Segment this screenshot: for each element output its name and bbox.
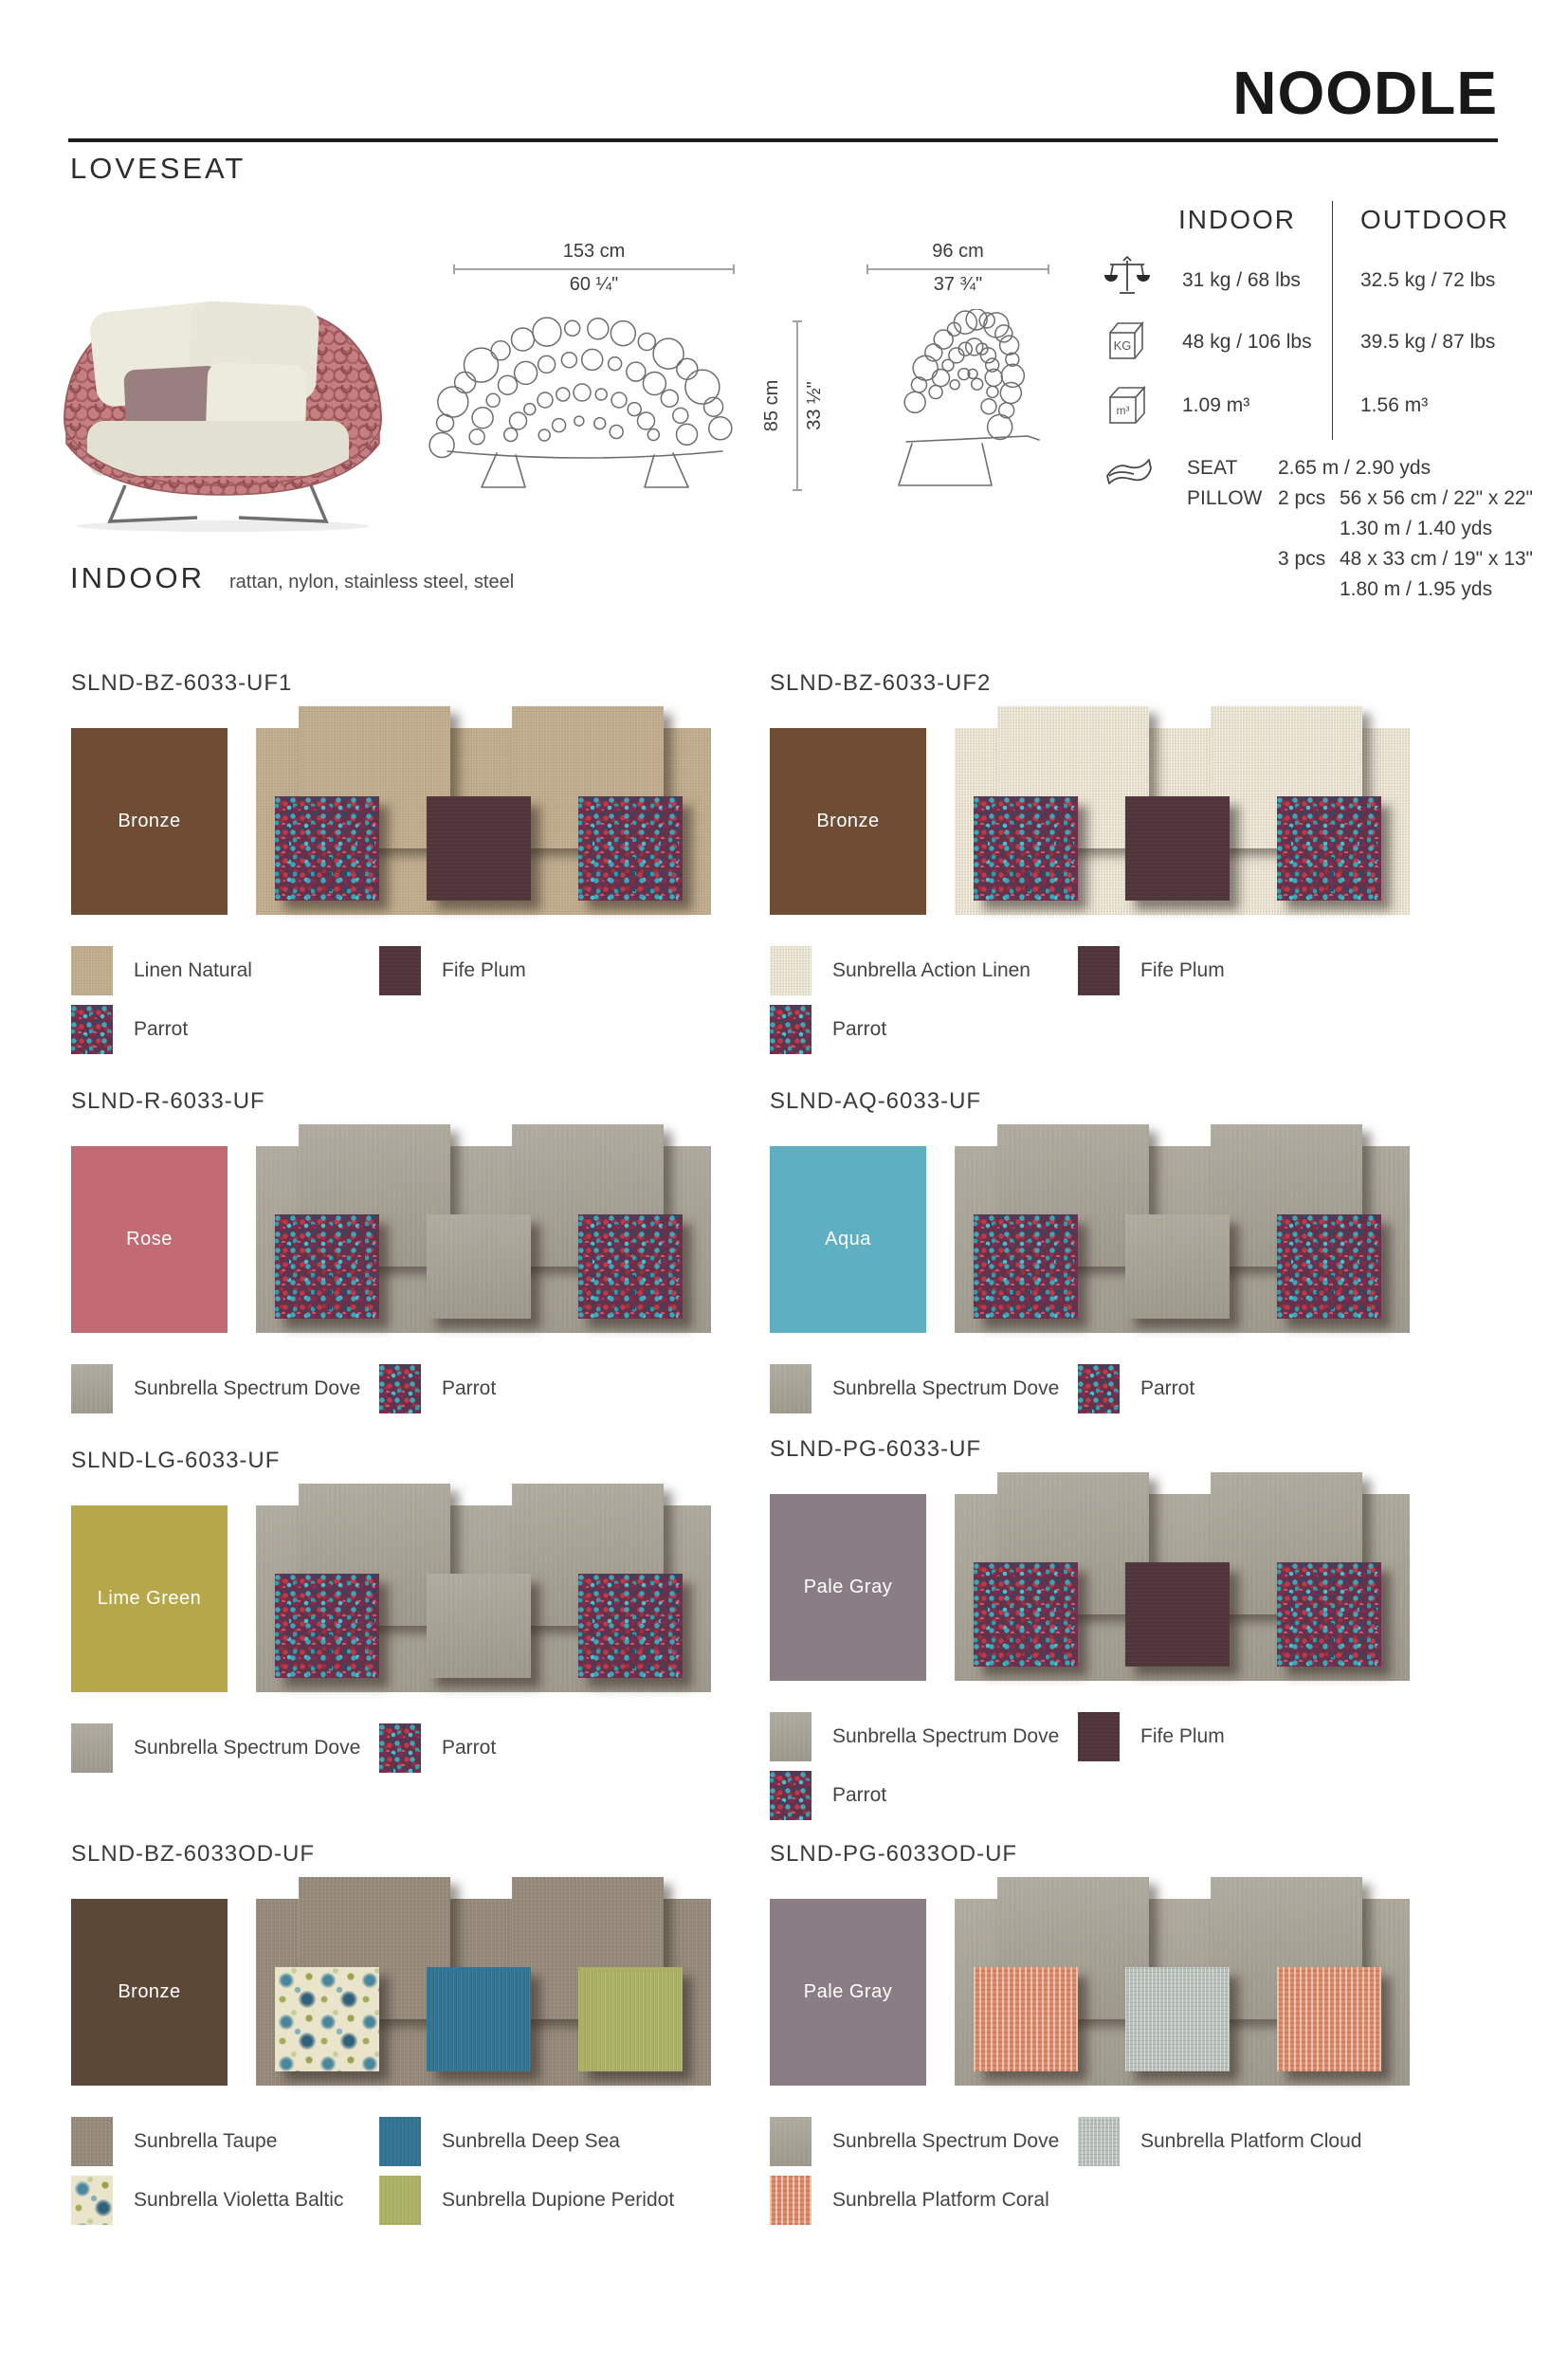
legend-item: Sunbrella Action Linen — [770, 946, 1078, 995]
fabric-collage — [955, 1472, 1410, 1681]
fabric-swatch — [770, 2117, 811, 2166]
variant-sku: SLND-BZ-6033-UF1 — [71, 670, 292, 697]
width-dimension: 153 cm 60 ¼" — [453, 241, 735, 296]
usage-pcs: 3 pcs — [1278, 548, 1340, 571]
variant-card: SLND-BZ-6033OD-UF Bronze Sunbrella Taupe… — [71, 1841, 725, 2287]
variant-sku: SLND-PG-6033-UF — [770, 1436, 981, 1463]
fabric-legend: Linen NaturalFife PlumParrot — [71, 946, 720, 1054]
fabric-legend: Sunbrella Spectrum DoveParrot — [71, 1364, 720, 1413]
variant-sku: SLND-PG-6033OD-UF — [770, 1841, 1017, 1868]
svg-text:KG: KG — [1114, 338, 1132, 353]
indoor-outdoor-divider — [1332, 201, 1333, 440]
fabric-usage-line: 3 pcs48 x 33 cm / 19" x 13" — [1278, 548, 1533, 578]
fabric-swatch — [71, 2176, 113, 2225]
fabric-roll-icon — [1103, 453, 1157, 495]
fabric-label: Sunbrella Dupione Peridot — [442, 2189, 674, 2212]
variant-sku: SLND-LG-6033-UF — [71, 1448, 280, 1474]
usage-text: 1.30 m / 1.40 yds — [1340, 518, 1492, 539]
fabric-label: Parrot — [832, 1018, 886, 1041]
fabric-legend: Sunbrella Action LinenFife PlumParrot — [770, 946, 1419, 1054]
m3-box-icon: m³ — [1107, 383, 1153, 427]
frame-color-label: Pale Gray — [804, 1577, 892, 1598]
collage-pillow-center — [1125, 1214, 1230, 1319]
collage-pillow-left — [974, 1967, 1078, 2071]
collage-pillow-left — [275, 796, 379, 901]
collage-pillow-right — [578, 796, 683, 901]
variant-card: SLND-BZ-6033-UF1 Bronze Linen NaturalFif… — [71, 670, 725, 1116]
collage-pillow-center — [427, 1214, 531, 1319]
collage-pillow-left — [275, 1967, 379, 2071]
fabric-label: Fife Plum — [1140, 1725, 1225, 1748]
side-view-drawing — [851, 309, 1060, 495]
fabric-swatch — [71, 1005, 113, 1054]
front-view-drawing — [428, 305, 741, 495]
fabric-label: Parrot — [134, 1018, 188, 1041]
fabric-swatch — [71, 946, 113, 995]
fabric-swatch — [1078, 1712, 1120, 1761]
variant-sku: SLND-R-6033-UF — [71, 1088, 265, 1115]
fabric-label: Sunbrella Spectrum Dove — [832, 1725, 1059, 1748]
outdoor-column-header: OUTDOOR — [1360, 205, 1509, 235]
legend-item: Sunbrella Dupione Peridot — [379, 2176, 720, 2225]
header-rule — [68, 138, 1498, 142]
fabric-label: Sunbrella Violetta Baltic — [134, 2189, 343, 2212]
product-photo — [38, 233, 408, 533]
fabric-collage — [955, 1124, 1410, 1333]
weight-indoor: 31 kg / 68 lbs — [1182, 269, 1301, 292]
legend-item: Sunbrella Spectrum Dove — [71, 1364, 379, 1413]
depth-imperial: 37 ¾" — [866, 274, 1049, 296]
fabric-legend: Sunbrella Spectrum DoveParrot — [71, 1723, 720, 1773]
variant-card: SLND-BZ-6033-UF2 Bronze Sunbrella Action… — [770, 670, 1424, 1116]
fabric-legend: Sunbrella Spectrum DoveFife PlumParrot — [770, 1712, 1419, 1820]
width-imperial: 60 ¼" — [453, 274, 735, 296]
collage-pillow-right — [578, 1574, 683, 1678]
collage-pillow-right — [1277, 1562, 1381, 1667]
legend-item: Parrot — [770, 1771, 1078, 1820]
collage-pillow-left — [275, 1574, 379, 1678]
volume-outdoor: 1.56 m³ — [1360, 394, 1428, 417]
fabric-label: Sunbrella Taupe — [134, 2130, 277, 2153]
fabric-collage — [955, 1877, 1410, 2086]
frame-color-block: Aqua — [770, 1146, 926, 1333]
legend-item: Parrot — [1078, 1364, 1419, 1413]
fabric-label: Sunbrella Platform Coral — [832, 2189, 1049, 2212]
depth-metric: 96 cm — [866, 241, 1049, 263]
frame-color-block: Pale Gray — [770, 1494, 926, 1681]
fabric-label: Sunbrella Spectrum Dove — [134, 1737, 360, 1759]
usage-text: 2.65 m / 2.90 yds — [1278, 457, 1431, 479]
fabric-label: Sunbrella Spectrum Dove — [832, 2130, 1059, 2153]
fabric-legend: Sunbrella Spectrum DoveSunbrella Platfor… — [770, 2117, 1419, 2225]
fabric-legend: Sunbrella Spectrum DoveParrot — [770, 1364, 1419, 1413]
legend-item: Fife Plum — [379, 946, 720, 995]
collage-pillow-center — [1125, 1967, 1230, 2071]
page-title: NOODLE — [569, 61, 1498, 125]
legend-item: Fife Plum — [1078, 946, 1419, 995]
fabric-swatch — [770, 1712, 811, 1761]
collage-pillow-right — [1277, 1967, 1381, 2071]
fabric-swatch — [1078, 946, 1120, 995]
fabric-swatch — [770, 2176, 811, 2225]
legend-item: Sunbrella Platform Cloud — [1078, 2117, 1419, 2166]
legend-item: Sunbrella Violetta Baltic — [71, 2176, 379, 2225]
frame-color-label: Bronze — [118, 811, 180, 832]
frame-color-block: Lime Green — [71, 1505, 228, 1692]
frame-color-block: Bronze — [71, 728, 228, 915]
fabric-swatch — [770, 1771, 811, 1820]
fabric-usage-line: 2 pcs56 x 56 cm / 22" x 22" — [1278, 487, 1533, 518]
width-metric: 153 cm — [453, 241, 735, 263]
height-dimension-line — [796, 320, 798, 491]
fabric-label: Sunbrella Spectrum Dove — [134, 1377, 360, 1400]
collage-pillow-left — [275, 1214, 379, 1319]
depth-dimension: 96 cm 37 ¾" — [866, 241, 1049, 296]
fabric-swatch — [379, 1723, 421, 1773]
indoor-column-header: INDOOR — [1178, 205, 1296, 235]
fabric-usage-line: 1.80 m / 1.95 yds — [1278, 578, 1533, 609]
collage-pillow-left — [974, 796, 1078, 901]
packed-weight-outdoor: 39.5 kg / 87 lbs — [1360, 331, 1495, 354]
legend-item: Sunbrella Platform Coral — [770, 2176, 1078, 2225]
materials-line: INDOOR rattan, nylon, stainless steel, s… — [70, 561, 514, 595]
variant-card: SLND-PG-6033OD-UF Pale Gray Sunbrella Sp… — [770, 1841, 1424, 2287]
fabric-swatch — [1078, 1364, 1120, 1413]
legend-item: Fife Plum — [1078, 1712, 1419, 1761]
fabric-collage — [256, 706, 711, 915]
legend-item: Sunbrella Spectrum Dove — [71, 1723, 379, 1773]
fabric-label: Fife Plum — [442, 959, 526, 982]
frame-color-block: Bronze — [71, 1899, 228, 2086]
packed-weight-indoor: 48 kg / 106 lbs — [1182, 331, 1312, 354]
fabric-label: Sunbrella Deep Sea — [442, 2130, 620, 2153]
frame-color-label: Bronze — [816, 811, 879, 832]
fabric-collage — [256, 1124, 711, 1333]
dimension-line — [453, 268, 735, 270]
materials-list: rattan, nylon, stainless steel, steel — [229, 572, 514, 593]
collage-pillow-right — [578, 1214, 683, 1319]
materials-category: INDOOR — [70, 561, 205, 595]
fabric-usage-line: 1.30 m / 1.40 yds — [1278, 518, 1533, 548]
collage-pillow-center — [427, 1574, 531, 1678]
dimension-line — [866, 268, 1049, 270]
frame-color-block: Pale Gray — [770, 1899, 926, 2086]
variant-card: SLND-PG-6033-UF Pale Gray Sunbrella Spec… — [770, 1436, 1424, 1882]
fabric-swatch — [379, 1364, 421, 1413]
legend-item: Sunbrella Taupe — [71, 2117, 379, 2166]
seat-fabric-label: SEAT — [1187, 457, 1237, 480]
frame-color-label: Bronze — [118, 1981, 180, 2003]
usage-pcs: 2 pcs — [1278, 487, 1340, 510]
collage-pillow-center — [1125, 1562, 1230, 1667]
fabric-swatch — [770, 1005, 811, 1054]
fabric-label: Parrot — [442, 1377, 496, 1400]
fabric-swatch — [379, 2176, 421, 2225]
usage-text: 48 x 33 cm / 19" x 13" — [1340, 548, 1533, 570]
collage-pillow-right — [1277, 1214, 1381, 1319]
variant-sku: SLND-BZ-6033-UF2 — [770, 670, 991, 697]
collage-pillow-center — [1125, 796, 1230, 901]
frame-color-block: Bronze — [770, 728, 926, 915]
legend-item: Parrot — [379, 1364, 720, 1413]
fabric-label: Sunbrella Platform Cloud — [1140, 2130, 1361, 2153]
fabric-swatch — [379, 2117, 421, 2166]
svg-text:m³: m³ — [1117, 404, 1130, 417]
kg-box-icon: KG — [1107, 319, 1151, 362]
frame-color-label: Pale Gray — [804, 1981, 892, 2003]
fabric-swatch — [71, 1364, 113, 1413]
fabric-swatch — [770, 946, 811, 995]
collage-pillow-right — [1277, 796, 1381, 901]
collage-pillow-right — [578, 1967, 683, 2071]
fabric-swatch — [379, 946, 421, 995]
usage-text: 56 x 56 cm / 22" x 22" — [1340, 487, 1533, 509]
legend-item: Parrot — [379, 1723, 720, 1773]
fabric-swatch — [1078, 2117, 1120, 2166]
fabric-swatch — [71, 1723, 113, 1773]
fabric-collage — [256, 1484, 711, 1692]
volume-indoor: 1.09 m³ — [1182, 394, 1249, 417]
usage-text: 1.80 m / 1.95 yds — [1340, 578, 1492, 600]
pillow-fabric-label: PILLOW — [1187, 487, 1262, 510]
fabric-swatch — [770, 1364, 811, 1413]
frame-color-label: Rose — [126, 1229, 173, 1250]
variant-sku: SLND-AQ-6033-UF — [770, 1088, 981, 1115]
fabric-label: Parrot — [832, 1784, 886, 1807]
collage-pillow-center — [427, 1967, 531, 2071]
fabric-usage-line: 2.65 m / 2.90 yds — [1278, 457, 1533, 487]
fabric-label: Linen Natural — [134, 959, 252, 982]
product-type-title: LOVESEAT — [70, 152, 246, 186]
legend-item: Sunbrella Spectrum Dove — [770, 2117, 1078, 2166]
legend-item: Parrot — [71, 1005, 379, 1054]
fabric-legend: Sunbrella TaupeSunbrella Deep SeaSunbrel… — [71, 2117, 720, 2225]
collage-pillow-left — [974, 1562, 1078, 1667]
scale-icon — [1103, 256, 1151, 298]
fabric-label: Parrot — [442, 1737, 496, 1759]
fabric-label: Sunbrella Spectrum Dove — [832, 1377, 1059, 1400]
legend-item: Sunbrella Spectrum Dove — [770, 1364, 1078, 1413]
collage-pillow-left — [974, 1214, 1078, 1319]
height-metric: 85 cm — [761, 320, 784, 491]
legend-item: Linen Natural — [71, 946, 379, 995]
fabric-label: Sunbrella Action Linen — [832, 959, 1030, 982]
fabric-label: Fife Plum — [1140, 959, 1225, 982]
fabric-collage — [955, 706, 1410, 915]
spec-sheet-page: NOODLE LOVESEAT 153 cm 60 ¼" — [0, 0, 1568, 2370]
height-imperial: 33 ½" — [804, 320, 827, 491]
legend-item: Sunbrella Spectrum Dove — [770, 1712, 1078, 1761]
variant-card: SLND-LG-6033-UF Lime Green Sunbrella Spe… — [71, 1448, 725, 1893]
fabric-swatch — [71, 2117, 113, 2166]
fabric-usage-values: 2.65 m / 2.90 yds 2 pcs56 x 56 cm / 22" … — [1278, 457, 1533, 609]
frame-color-label: Lime Green — [98, 1588, 202, 1610]
frame-color-block: Rose — [71, 1146, 228, 1333]
collage-pillow-center — [427, 796, 531, 901]
fabric-collage — [256, 1877, 711, 2086]
legend-item: Parrot — [770, 1005, 1078, 1054]
fabric-label: Parrot — [1140, 1377, 1194, 1400]
weight-outdoor: 32.5 kg / 72 lbs — [1360, 269, 1495, 292]
frame-color-label: Aqua — [825, 1229, 871, 1250]
legend-item: Sunbrella Deep Sea — [379, 2117, 720, 2166]
variant-sku: SLND-BZ-6033OD-UF — [71, 1841, 315, 1868]
